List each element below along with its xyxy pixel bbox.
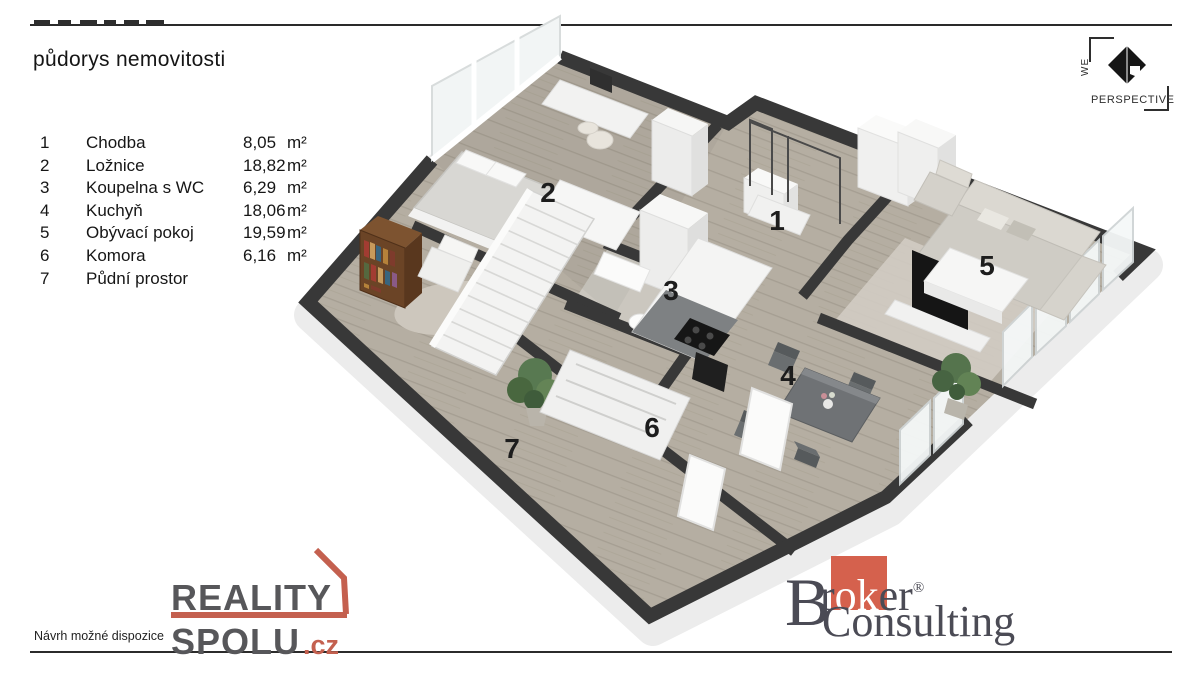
reality-spolu-logo-line2: SPOLU (171, 621, 300, 663)
flyer-page: půdorys nemovitosti 1Chodba8,05m² 2Ložni… (0, 0, 1200, 675)
room-label-3: 3 (663, 275, 679, 306)
footer-note: Návrh možné dispozice (34, 629, 164, 643)
room-label-2: 2 (540, 177, 556, 208)
roof-icon (310, 542, 355, 618)
perspective-logo-we: WE (1080, 58, 1091, 76)
room-label-4: 4 (780, 360, 796, 391)
room-label-6: 6 (644, 412, 660, 443)
room-label-5: 5 (979, 250, 995, 281)
reality-spolu-logo-tld: .cz (303, 630, 339, 661)
perspective-logo-word: PERSPECTIVE (1091, 94, 1175, 106)
broker-logo-line2: Consulting (822, 600, 1015, 644)
room-label-1: 1 (769, 205, 785, 236)
room-label-7: 7 (504, 433, 520, 464)
floor-plan: 1 2 3 4 5 6 7 (0, 0, 1200, 675)
registered-mark: ® (913, 580, 924, 596)
vase (823, 399, 833, 409)
house-icon (1108, 46, 1146, 84)
bedroom-shelf (652, 108, 708, 196)
bookshelf (360, 216, 422, 308)
